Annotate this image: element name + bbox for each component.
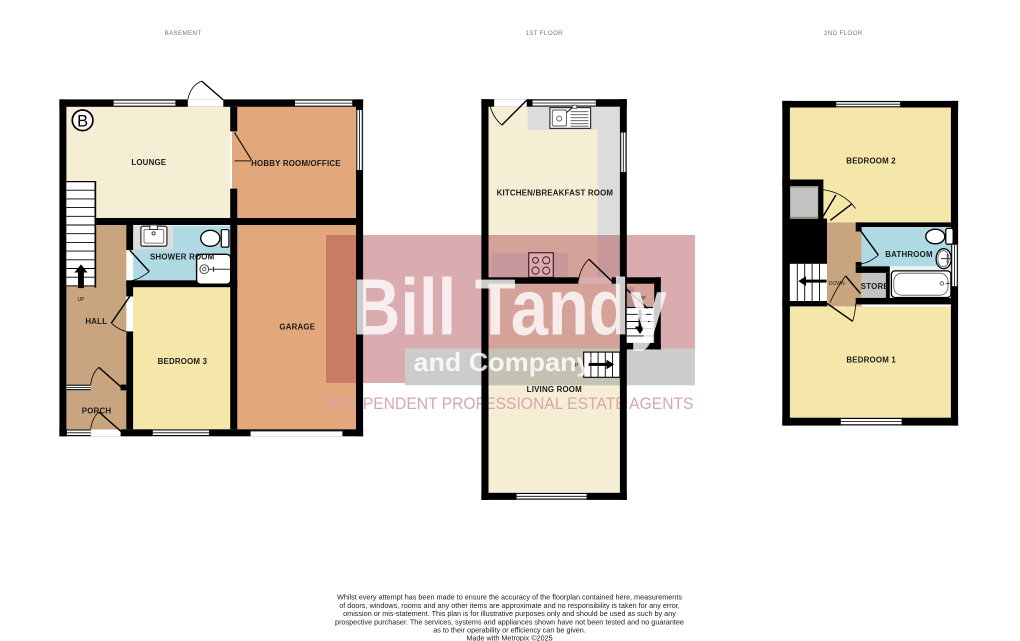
svg-text:BEDROOM 2: BEDROOM 2 — [846, 156, 896, 165]
svg-text:UP: UP — [78, 297, 86, 303]
svg-text:2ND FLOOR: 2ND FLOOR — [824, 30, 863, 37]
svg-text:BASEMENT: BASEMENT — [164, 30, 201, 37]
svg-text:BEDROOM 3: BEDROOM 3 — [158, 357, 208, 366]
svg-text:LIVING ROOM: LIVING ROOM — [527, 385, 582, 394]
svg-text:Made with Metropix ©2025: Made with Metropix ©2025 — [466, 633, 552, 641]
svg-text:HALL: HALL — [85, 317, 107, 326]
svg-text:SHOWER ROOM: SHOWER ROOM — [150, 252, 215, 261]
svg-text:KITCHEN/BREAKFAST ROOM: KITCHEN/BREAKFAST ROOM — [497, 189, 614, 198]
svg-text:HOBBY ROOM/OFFICE: HOBBY ROOM/OFFICE — [251, 159, 341, 168]
svg-text:Bill Tandy: Bill Tandy — [352, 263, 667, 352]
svg-text:DOWN: DOWN — [829, 281, 845, 287]
svg-text:BATHROOM: BATHROOM — [885, 250, 933, 259]
svg-text:BEDROOM 1: BEDROOM 1 — [846, 355, 896, 364]
svg-text:GARAGE: GARAGE — [279, 323, 315, 332]
svg-text:1ST FLOOR: 1ST FLOOR — [525, 30, 563, 37]
svg-text:STORE: STORE — [861, 282, 889, 291]
svg-text:PORCH: PORCH — [82, 407, 112, 416]
svg-text:INDEPENDENT PROFESSIONAL ESTAT: INDEPENDENT PROFESSIONAL ESTATE AGENTS — [326, 395, 694, 413]
svg-text:and Company: and Company — [414, 347, 593, 377]
svg-text:B: B — [77, 112, 88, 130]
svg-text:LOUNGE: LOUNGE — [131, 158, 166, 167]
